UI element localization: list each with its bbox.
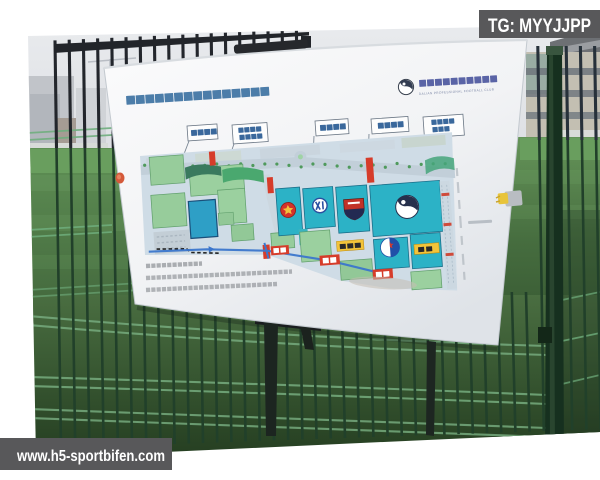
svg-text:TG: MYYJJPP: TG: MYYJJPP (488, 15, 591, 37)
svg-text:www.h5-sportbifen.com: www.h5-sportbifen.com (16, 448, 165, 465)
